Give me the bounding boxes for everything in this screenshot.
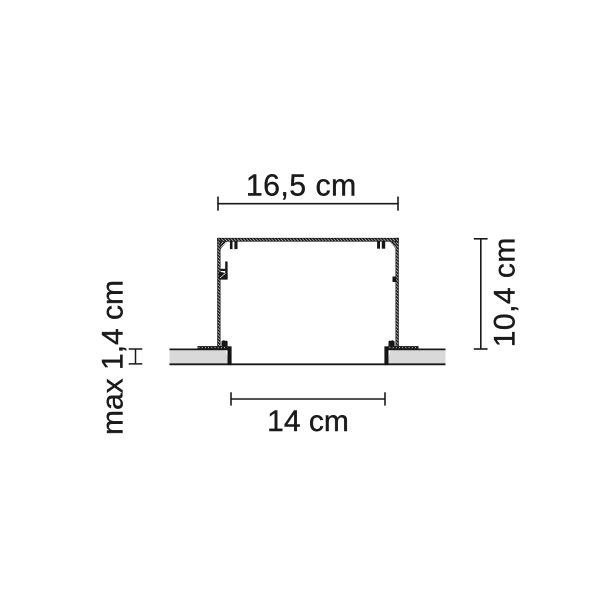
svg-text:14 cm: 14 cm xyxy=(267,405,349,438)
svg-text:max 1,4 cm: max 1,4 cm xyxy=(97,280,130,435)
svg-text:10,4 cm: 10,4 cm xyxy=(489,237,522,347)
svg-text:16,5 cm: 16,5 cm xyxy=(246,170,357,203)
